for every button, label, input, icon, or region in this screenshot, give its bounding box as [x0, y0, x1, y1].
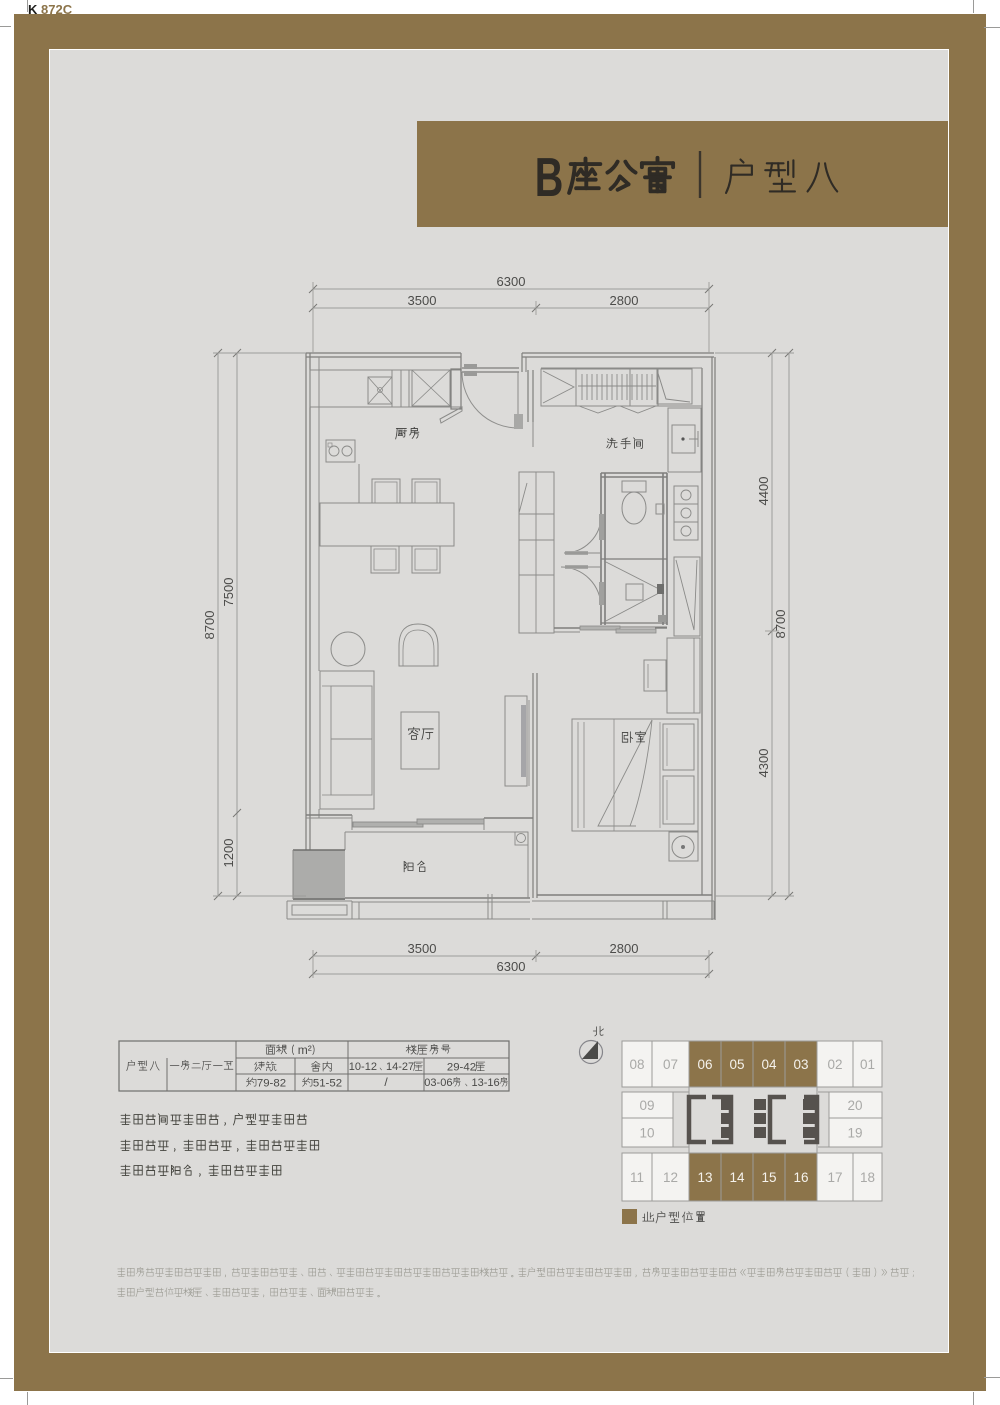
svg-text:01: 01 — [860, 1057, 875, 1072]
svg-text:3500: 3500 — [408, 941, 437, 956]
svg-text:13-16: 13-16 — [472, 1077, 500, 1089]
svg-text:17: 17 — [827, 1170, 842, 1185]
svg-text:13: 13 — [697, 1170, 712, 1185]
svg-text:m²: m² — [298, 1043, 312, 1057]
svg-text:8700: 8700 — [202, 611, 217, 640]
svg-text:19: 19 — [847, 1126, 862, 1141]
svg-text:04: 04 — [761, 1057, 777, 1072]
svg-text:10: 10 — [639, 1126, 654, 1141]
svg-text:6300: 6300 — [497, 959, 526, 974]
svg-text:14-27: 14-27 — [386, 1061, 414, 1073]
svg-text:18: 18 — [860, 1170, 875, 1185]
svg-text:12: 12 — [663, 1170, 678, 1185]
svg-text:03: 03 — [793, 1057, 808, 1072]
svg-text:4400: 4400 — [756, 477, 771, 506]
svg-text:02: 02 — [827, 1057, 842, 1072]
svg-text:05: 05 — [729, 1057, 744, 1072]
svg-text:15: 15 — [761, 1170, 776, 1185]
svg-text:08: 08 — [629, 1057, 644, 1072]
svg-text:29-42: 29-42 — [447, 1062, 476, 1074]
svg-text:2800: 2800 — [610, 293, 639, 308]
svg-text:06: 06 — [697, 1057, 712, 1072]
svg-text:1200: 1200 — [221, 839, 236, 868]
svg-text:20: 20 — [847, 1098, 862, 1113]
svg-text:51-52: 51-52 — [313, 1078, 342, 1090]
svg-text:79-82: 79-82 — [257, 1078, 286, 1090]
svg-text:7500: 7500 — [221, 578, 236, 607]
svg-text:2800: 2800 — [610, 941, 639, 956]
svg-text:03-06: 03-06 — [424, 1077, 452, 1089]
svg-text:07: 07 — [663, 1057, 678, 1072]
svg-text:/: / — [384, 1075, 388, 1089]
svg-text:09: 09 — [639, 1098, 654, 1113]
svg-text:11: 11 — [630, 1170, 644, 1185]
svg-text:16: 16 — [793, 1170, 808, 1185]
svg-text:10-12: 10-12 — [349, 1061, 377, 1073]
svg-text:14: 14 — [729, 1170, 745, 1185]
svg-text:B: B — [535, 148, 564, 209]
svg-text:6300: 6300 — [497, 274, 526, 289]
svg-text:8700: 8700 — [773, 610, 788, 639]
svg-text:4300: 4300 — [756, 749, 771, 778]
svg-text:3500: 3500 — [408, 293, 437, 308]
